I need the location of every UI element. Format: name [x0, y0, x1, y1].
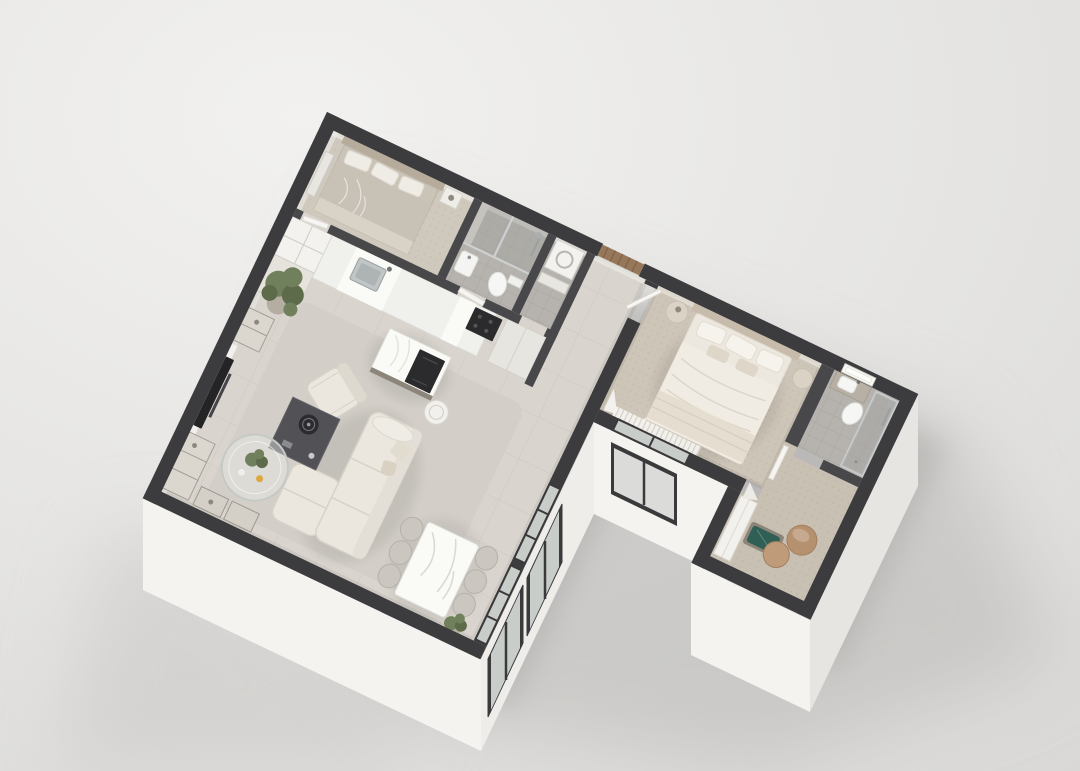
floorplan-render: Photorealistic 3D axonometric floor-plan…: [0, 0, 1080, 771]
